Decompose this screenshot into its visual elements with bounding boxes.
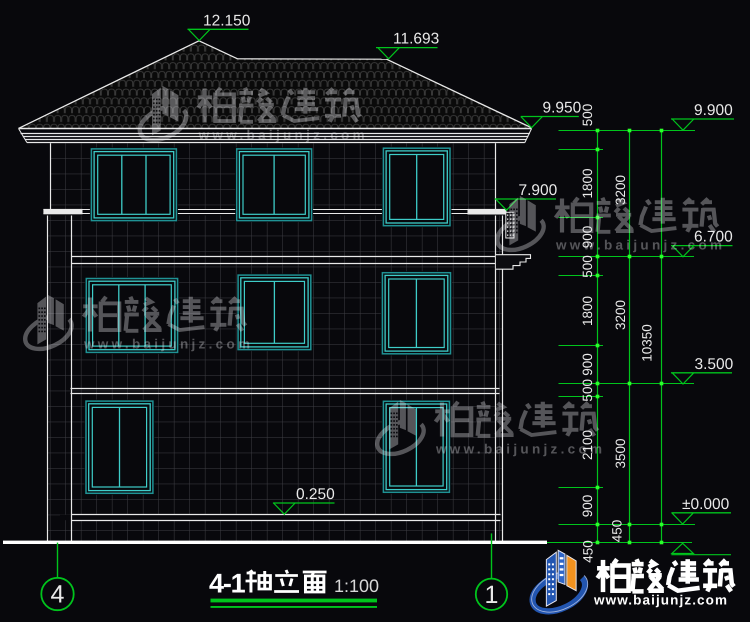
svg-text:10350: 10350 [640, 324, 655, 362]
svg-text:9.950: 9.950 [543, 100, 582, 117]
svg-text:1: 1 [485, 581, 499, 609]
svg-text:3200: 3200 [613, 300, 628, 330]
svg-text:4-1: 4-1 [209, 569, 246, 599]
svg-text:500: 500 [580, 104, 595, 127]
svg-text:900: 900 [580, 353, 595, 376]
svg-text:450: 450 [610, 520, 625, 543]
svg-text:1:100: 1:100 [334, 576, 379, 596]
svg-text:0.250: 0.250 [296, 486, 335, 503]
svg-text:4: 4 [51, 581, 65, 609]
svg-text:450: 450 [581, 540, 596, 563]
svg-text:3500: 3500 [613, 438, 628, 468]
svg-text:900: 900 [580, 495, 595, 518]
svg-text:7.900: 7.900 [519, 182, 558, 199]
svg-text:9.900: 9.900 [694, 102, 733, 119]
svg-text:1800: 1800 [580, 168, 595, 198]
svg-text:www.baijunjz.com: www.baijunjz.com [593, 593, 728, 608]
svg-text:3.500: 3.500 [695, 356, 734, 373]
svg-text:11.693: 11.693 [393, 31, 439, 48]
svg-text:500: 500 [580, 255, 595, 278]
svg-text:1800: 1800 [580, 296, 595, 326]
svg-text:12.150: 12.150 [203, 12, 251, 29]
svg-text:500: 500 [580, 379, 595, 402]
svg-text:±0.000: ±0.000 [682, 496, 730, 513]
